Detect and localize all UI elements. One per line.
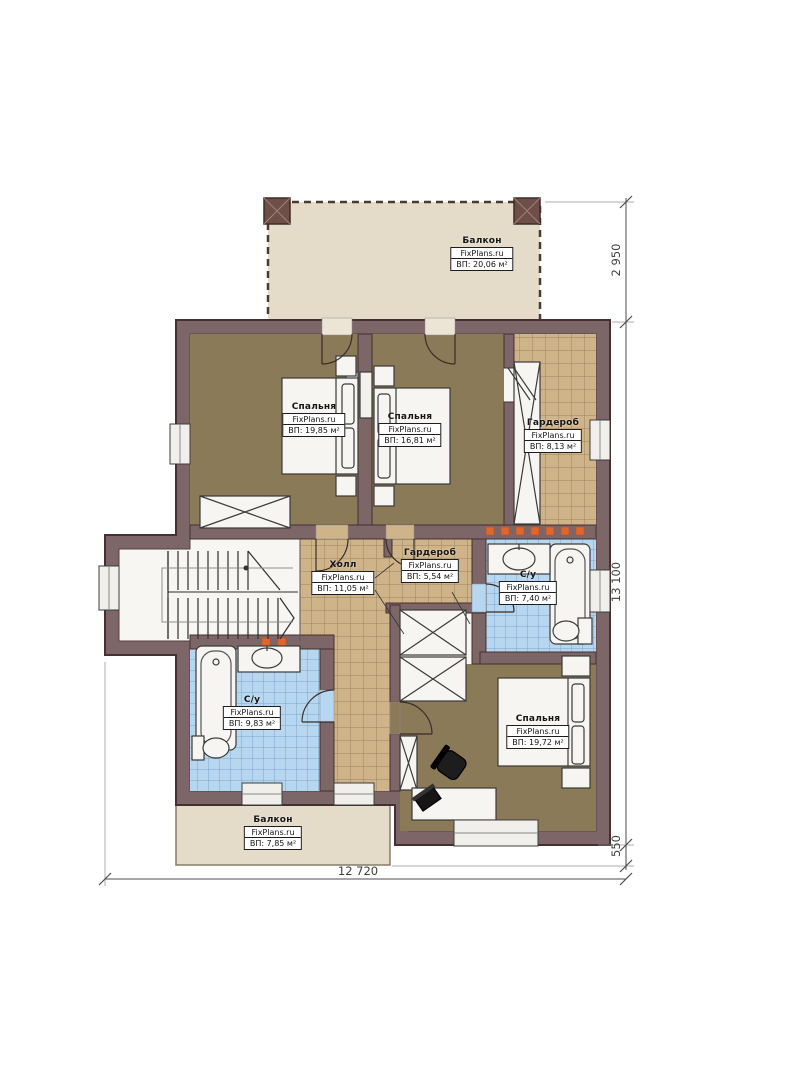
room-label-wardrobe-mid: Гардероб FixPlans.ru ВП: 5,54 м² bbox=[401, 548, 459, 583]
balcony-corner-pillar-left bbox=[264, 198, 290, 224]
room-label-box: FixPlans.ru ВП: 19,72 м² bbox=[506, 725, 569, 749]
brand-watermark: FixPlans.ru bbox=[402, 560, 458, 571]
balcony-corner-pillar-right bbox=[514, 198, 540, 224]
room-name: С/у bbox=[499, 570, 557, 580]
room-area: ВП: 16,81 м² bbox=[379, 435, 440, 446]
toilet-left bbox=[192, 736, 229, 760]
brand-watermark: FixPlans.ru bbox=[507, 726, 568, 737]
room-label-box: FixPlans.ru ВП: 8,13 м² bbox=[524, 429, 582, 453]
room-name: Гардероб bbox=[524, 418, 582, 428]
closet-mid-2 bbox=[400, 657, 466, 701]
room-area: ВП: 7,40 м² bbox=[500, 593, 556, 604]
room-name: Спальня bbox=[506, 714, 569, 724]
room-label-box: FixPlans.ru ВП: 5,54 м² bbox=[401, 559, 459, 583]
brand-watermark: FixPlans.ru bbox=[379, 424, 440, 435]
floor-plan-canvas bbox=[0, 0, 792, 1080]
brand-watermark: FixPlans.ru bbox=[245, 827, 301, 838]
room-label-wardrobe-right: Гардероб FixPlans.ru ВП: 8,13 м² bbox=[524, 418, 582, 453]
dim-balcony-depth: 2 950 bbox=[609, 244, 623, 277]
window-bottom-left-1 bbox=[242, 783, 282, 805]
brand-watermark: FixPlans.ru bbox=[283, 414, 344, 425]
window-right-upper bbox=[590, 420, 610, 460]
room-area: ВП: 9,83 м² bbox=[224, 718, 280, 729]
brand-watermark: FixPlans.ru bbox=[312, 572, 373, 583]
closet-mid-1 bbox=[400, 610, 466, 655]
room-label-bathroom-right: С/у FixPlans.ru ВП: 7,40 м² bbox=[499, 570, 557, 605]
room-label-hall: Холл FixPlans.ru ВП: 11,05 м² bbox=[311, 560, 374, 595]
room-label-box: FixPlans.ru ВП: 9,83 м² bbox=[223, 706, 281, 730]
room-label-box: FixPlans.ru ВП: 19,85 м² bbox=[282, 413, 345, 437]
window-stair-left bbox=[99, 566, 119, 610]
room-name: Спальня bbox=[378, 412, 441, 422]
room-area: ВП: 19,72 м² bbox=[507, 737, 568, 748]
room-name: Гардероб bbox=[401, 548, 459, 558]
room-label-box: FixPlans.ru ВП: 20,06 м² bbox=[450, 247, 513, 271]
dim-building-width: 12 720 bbox=[338, 864, 378, 878]
room-area: ВП: 8,13 м² bbox=[525, 441, 581, 452]
window-left-upper bbox=[170, 424, 190, 464]
dim-balcony-offset: 550 bbox=[609, 835, 623, 857]
window-bottom-right bbox=[454, 820, 538, 846]
brand-watermark: FixPlans.ru bbox=[224, 707, 280, 718]
sink-left bbox=[238, 646, 300, 672]
room-label-bathroom-left: С/у FixPlans.ru ВП: 9,83 м² bbox=[223, 695, 281, 730]
room-label-balcony-top: Балкон FixPlans.ru ВП: 20,06 м² bbox=[450, 236, 513, 271]
room-area: ВП: 5,54 м² bbox=[402, 571, 458, 582]
window-right-mid bbox=[590, 570, 610, 612]
closet-hall-bottom bbox=[400, 736, 417, 790]
room-label-bedroom-bottom: Спальня FixPlans.ru ВП: 19,72 м² bbox=[506, 714, 569, 749]
floor-plan-page: Балкон FixPlans.ru ВП: 20,06 м² Спальня … bbox=[0, 0, 792, 1080]
room-label-box: FixPlans.ru ВП: 16,81 м² bbox=[378, 423, 441, 447]
window-bottom-left-2 bbox=[334, 783, 374, 805]
room-name: Балкон bbox=[450, 236, 513, 246]
room-name: Спальня bbox=[282, 402, 345, 412]
room-label-balcony-bottom: Балкон FixPlans.ru ВП: 7,85 м² bbox=[244, 815, 302, 850]
room-name: Холл bbox=[311, 560, 374, 570]
dim-building-height: 13 100 bbox=[609, 562, 623, 602]
room-label-box: FixPlans.ru ВП: 11,05 м² bbox=[311, 571, 374, 595]
room-label-box: FixPlans.ru ВП: 7,85 м² bbox=[244, 826, 302, 850]
brand-watermark: FixPlans.ru bbox=[500, 582, 556, 593]
room-label-bedroom-top-mid: Спальня FixPlans.ru ВП: 16,81 м² bbox=[378, 412, 441, 447]
brand-watermark: FixPlans.ru bbox=[451, 248, 512, 259]
room-area: ВП: 11,05 м² bbox=[312, 583, 373, 594]
room-name: Балкон bbox=[244, 815, 302, 825]
room-name: С/у bbox=[223, 695, 281, 705]
room-label-box: FixPlans.ru ВП: 7,40 м² bbox=[499, 581, 557, 605]
brand-watermark: FixPlans.ru bbox=[525, 430, 581, 441]
room-label-bedroom-top-left: Спальня FixPlans.ru ВП: 19,85 м² bbox=[282, 402, 345, 437]
room-area: ВП: 7,85 м² bbox=[245, 838, 301, 849]
room-area: ВП: 20,06 м² bbox=[451, 259, 512, 270]
closet-top-left bbox=[200, 496, 290, 528]
room-area: ВП: 19,85 м² bbox=[283, 425, 344, 436]
